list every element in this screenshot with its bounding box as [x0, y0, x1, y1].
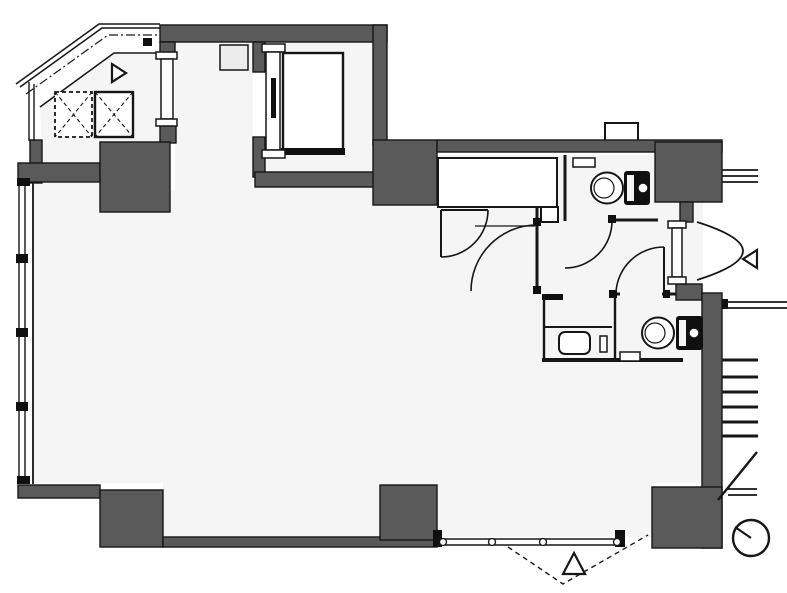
wall-northeast-block: [655, 142, 722, 202]
wall-entry-stub-upper: [680, 202, 693, 222]
wall-southeast-block: [652, 487, 722, 548]
wc2-door-vent: [620, 352, 640, 361]
door-arc-entry: [697, 222, 743, 280]
pivot-dot: [614, 539, 621, 546]
floor-plan-drawing: [0, 0, 787, 593]
west-window-wall: [16, 178, 33, 484]
wall-northwest-block: [100, 142, 170, 212]
main-room-floor-nw: [100, 212, 170, 483]
wc1-wall-niche: [573, 158, 595, 167]
shaft-car-box: [283, 53, 343, 151]
wall-northwest-strip: [18, 163, 100, 182]
shaft-door-cap-bottom: [262, 150, 285, 158]
west-window-mullion-3: [16, 402, 28, 411]
entry-door-cap-bottom: [668, 277, 686, 284]
pivot-dot: [440, 539, 447, 546]
wc2-flush-button: [689, 328, 699, 338]
wall-entry-stub-lower: [676, 284, 702, 300]
lobby-door-cap-top: [156, 52, 177, 59]
entry-triangle-south: [563, 553, 585, 574]
wc2-toilet-bowl: [642, 318, 674, 349]
shaft-door-track: [271, 78, 276, 118]
pivot-dot: [489, 539, 496, 546]
lobby-door-cap-bottom: [156, 119, 177, 126]
window-frame-tick: [143, 38, 152, 46]
stair-break-diagonal: [718, 452, 757, 500]
entry-door-frame: [672, 228, 682, 277]
lobby-door-body: [161, 59, 173, 119]
east-exterior: [718, 170, 787, 556]
west-window-cap-bottom: [17, 476, 30, 484]
wc1-tank-slot: [627, 175, 634, 201]
entry-triangle-east: [743, 250, 757, 268]
west-window-mullion-1: [16, 254, 28, 263]
storage-counter-return: [541, 207, 558, 222]
wall-southwest-block: [100, 490, 163, 547]
west-window-cap-top: [17, 178, 30, 186]
main-room-floor-west: [33, 183, 100, 483]
wall-shaft-east: [373, 25, 387, 145]
wall-center-block: [373, 140, 437, 205]
door-post: [533, 286, 541, 294]
wall-band-under-shaft: [255, 172, 375, 187]
wall-top-lobby-shaft: [160, 25, 387, 42]
west-window-mullion-2: [16, 328, 28, 337]
sink-basin: [559, 332, 590, 354]
wall-south-pillar-block: [380, 485, 437, 540]
shaft-car-sill: [281, 148, 345, 155]
storage-counter: [438, 158, 557, 207]
shaft-door-cap-top: [262, 44, 285, 52]
floor-plan-page: [0, 0, 787, 593]
pivot-dot: [540, 539, 547, 546]
wc2-tank-slot: [679, 320, 686, 346]
south-glass-wall: [433, 530, 648, 584]
entry-door-cap-top: [668, 221, 686, 228]
wc1-flush-button: [638, 183, 648, 193]
wall-southwest-thin: [18, 485, 100, 498]
lobby-duct-square: [220, 45, 248, 70]
sink-side-panel: [600, 336, 607, 352]
wc1-toilet-bowl: [591, 173, 623, 204]
